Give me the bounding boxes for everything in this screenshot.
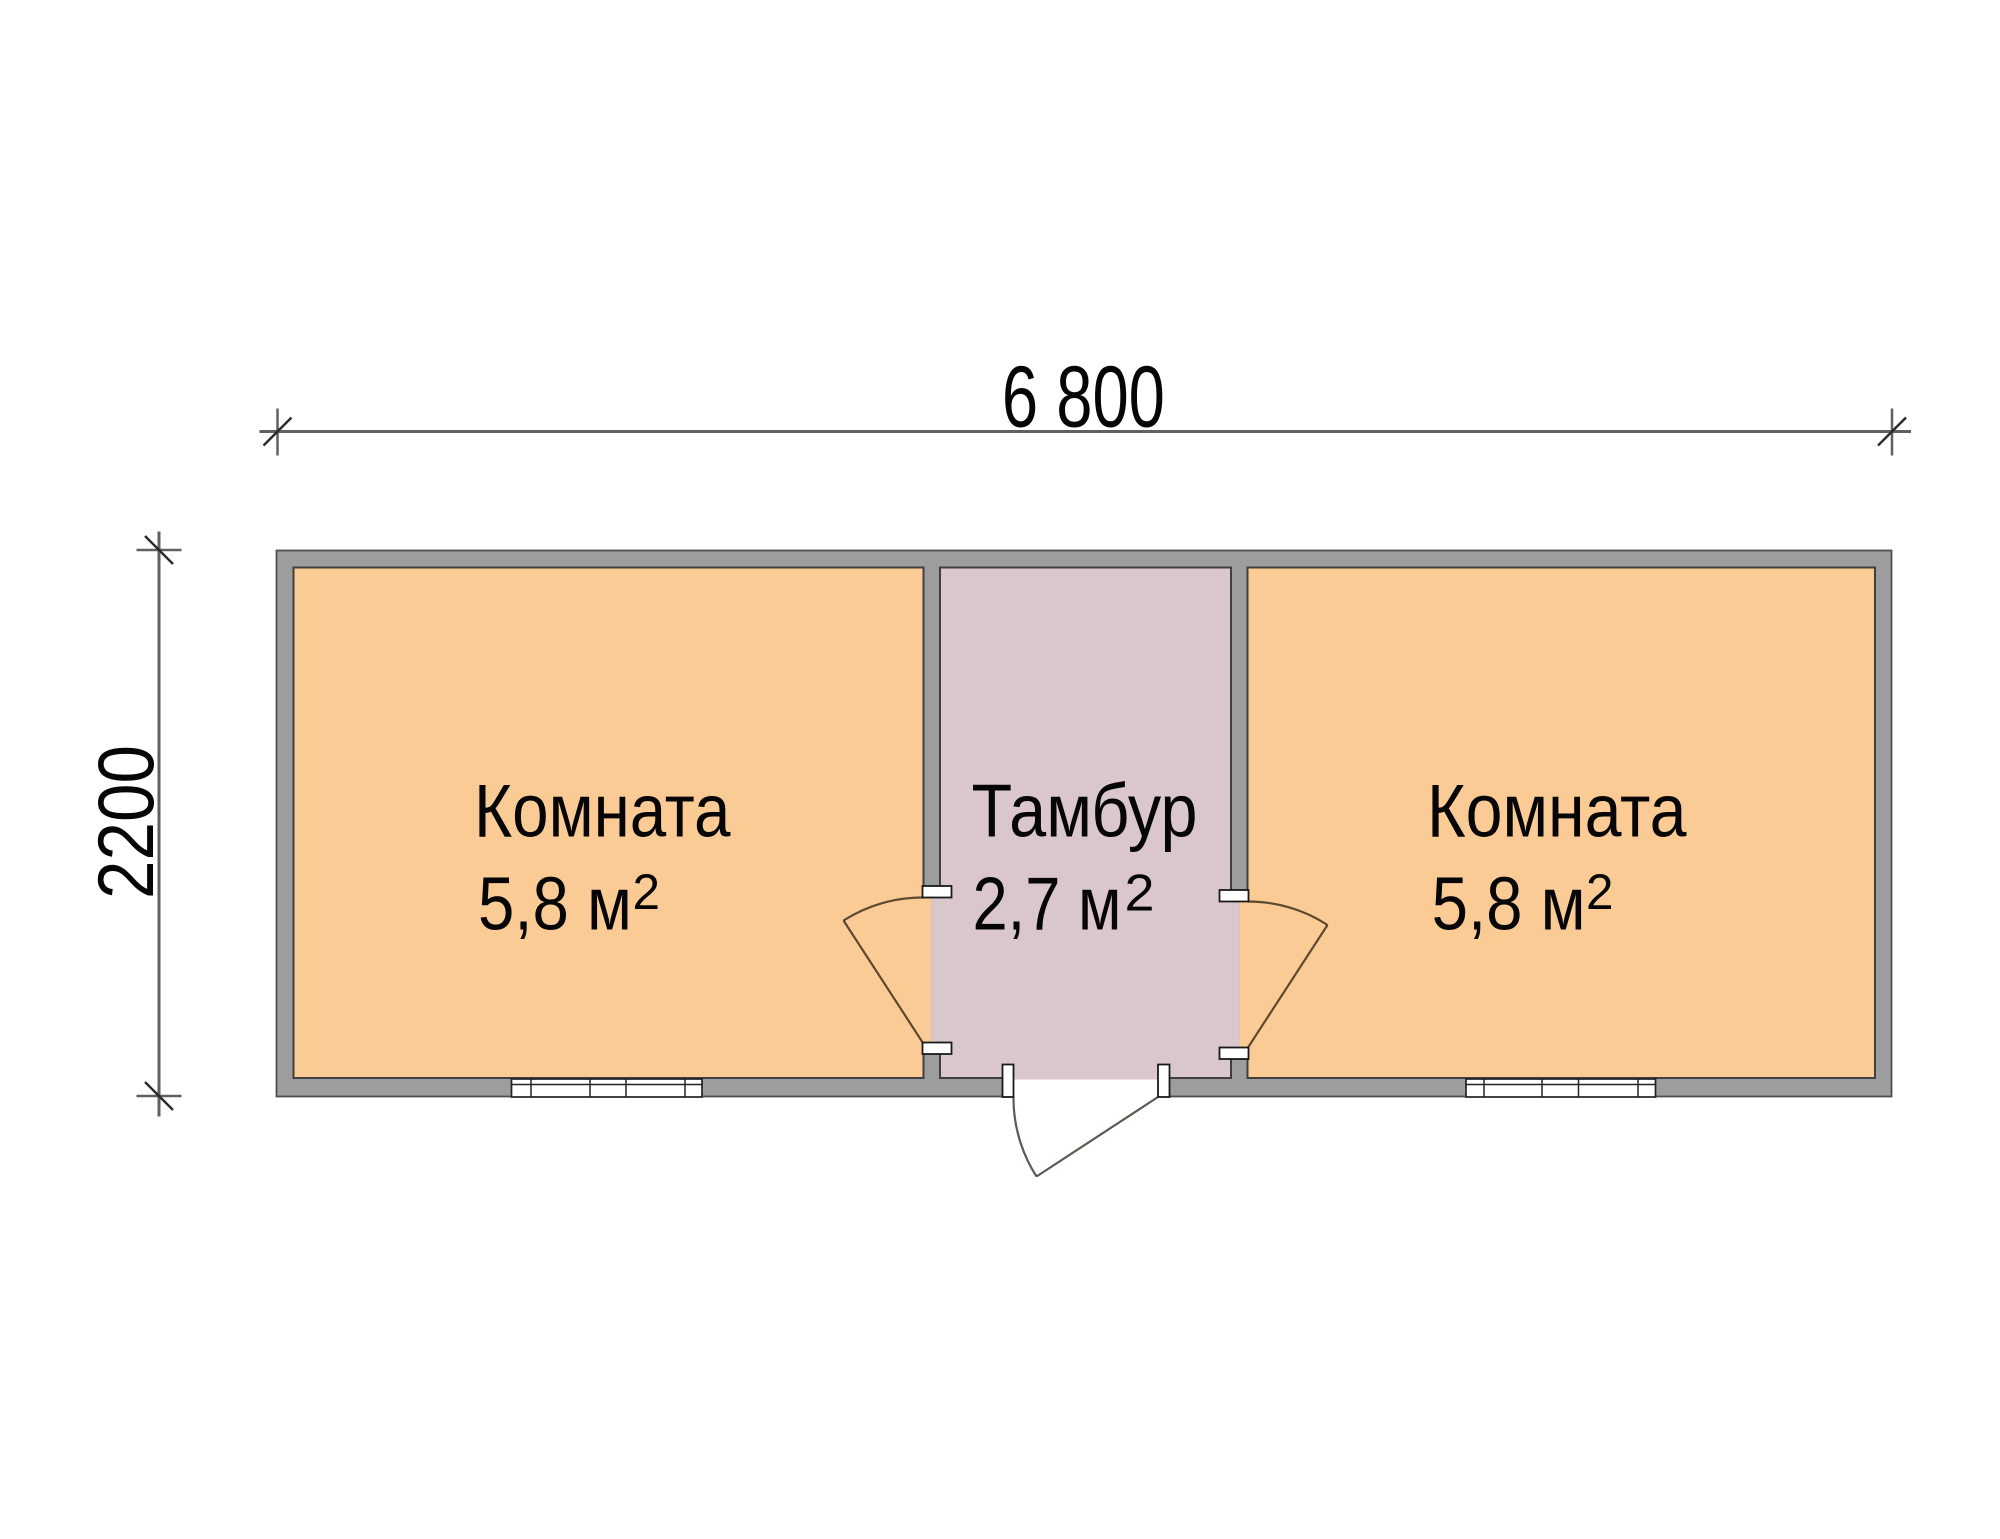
svg-text:2: 2	[1125, 865, 1155, 923]
svg-text:6 800: 6 800	[1002, 349, 1165, 446]
svg-text:Комната: Комната	[1427, 769, 1687, 853]
svg-text:Комната: Комната	[474, 769, 731, 853]
svg-text:2,7 м: 2,7 м	[973, 861, 1122, 945]
svg-text:2: 2	[1586, 864, 1614, 920]
svg-text:2: 2	[633, 864, 661, 920]
svg-text:5,8 м: 5,8 м	[1432, 861, 1586, 945]
svg-text:Тамбур: Тамбур	[972, 769, 1198, 853]
svg-text:2200: 2200	[81, 745, 170, 899]
svg-text:5,8 м: 5,8 м	[478, 861, 632, 945]
